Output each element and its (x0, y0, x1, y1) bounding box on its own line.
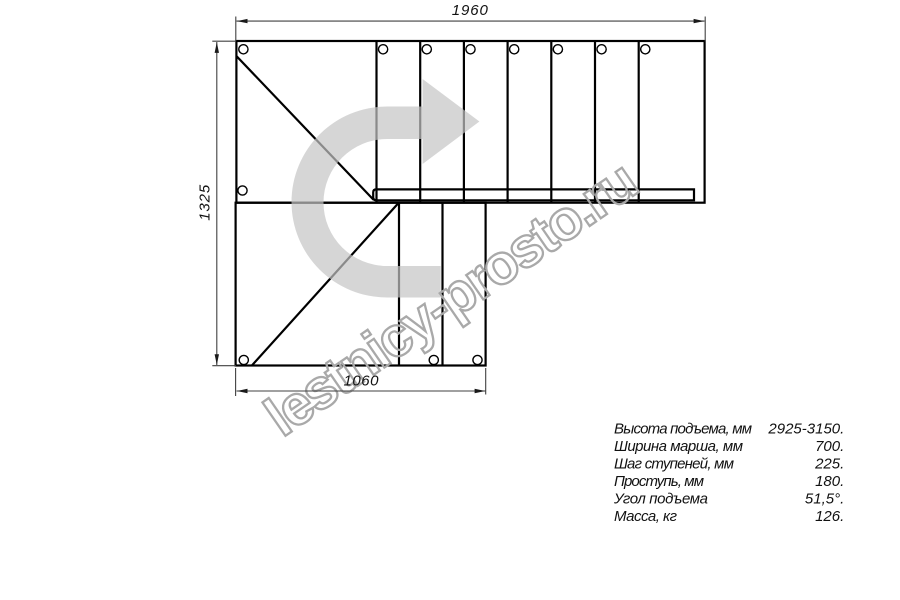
svg-text:Угол подъема: Угол подъема (613, 491, 708, 508)
svg-text:Ширина марша, мм: Ширина марша, мм (614, 438, 743, 455)
svg-text:Масса, кг: Масса, кг (614, 508, 678, 525)
svg-text:180.: 180. (815, 473, 844, 490)
svg-text:1960: 1960 (452, 2, 489, 19)
svg-text:51,5°.: 51,5°. (805, 491, 844, 508)
svg-text:Шаг ступеней, мм: Шаг ступеней, мм (614, 455, 734, 472)
svg-text:Высота подъема, мм: Высота подъема, мм (614, 420, 752, 437)
svg-text:2925-3150.: 2925-3150. (767, 420, 844, 437)
svg-text:Проступь, мм: Проступь, мм (614, 473, 704, 490)
svg-text:1060: 1060 (344, 373, 380, 390)
svg-text:700.: 700. (815, 438, 844, 455)
svg-text:1325: 1325 (197, 184, 214, 221)
svg-text:225.: 225. (814, 455, 844, 472)
svg-text:126.: 126. (815, 508, 844, 525)
